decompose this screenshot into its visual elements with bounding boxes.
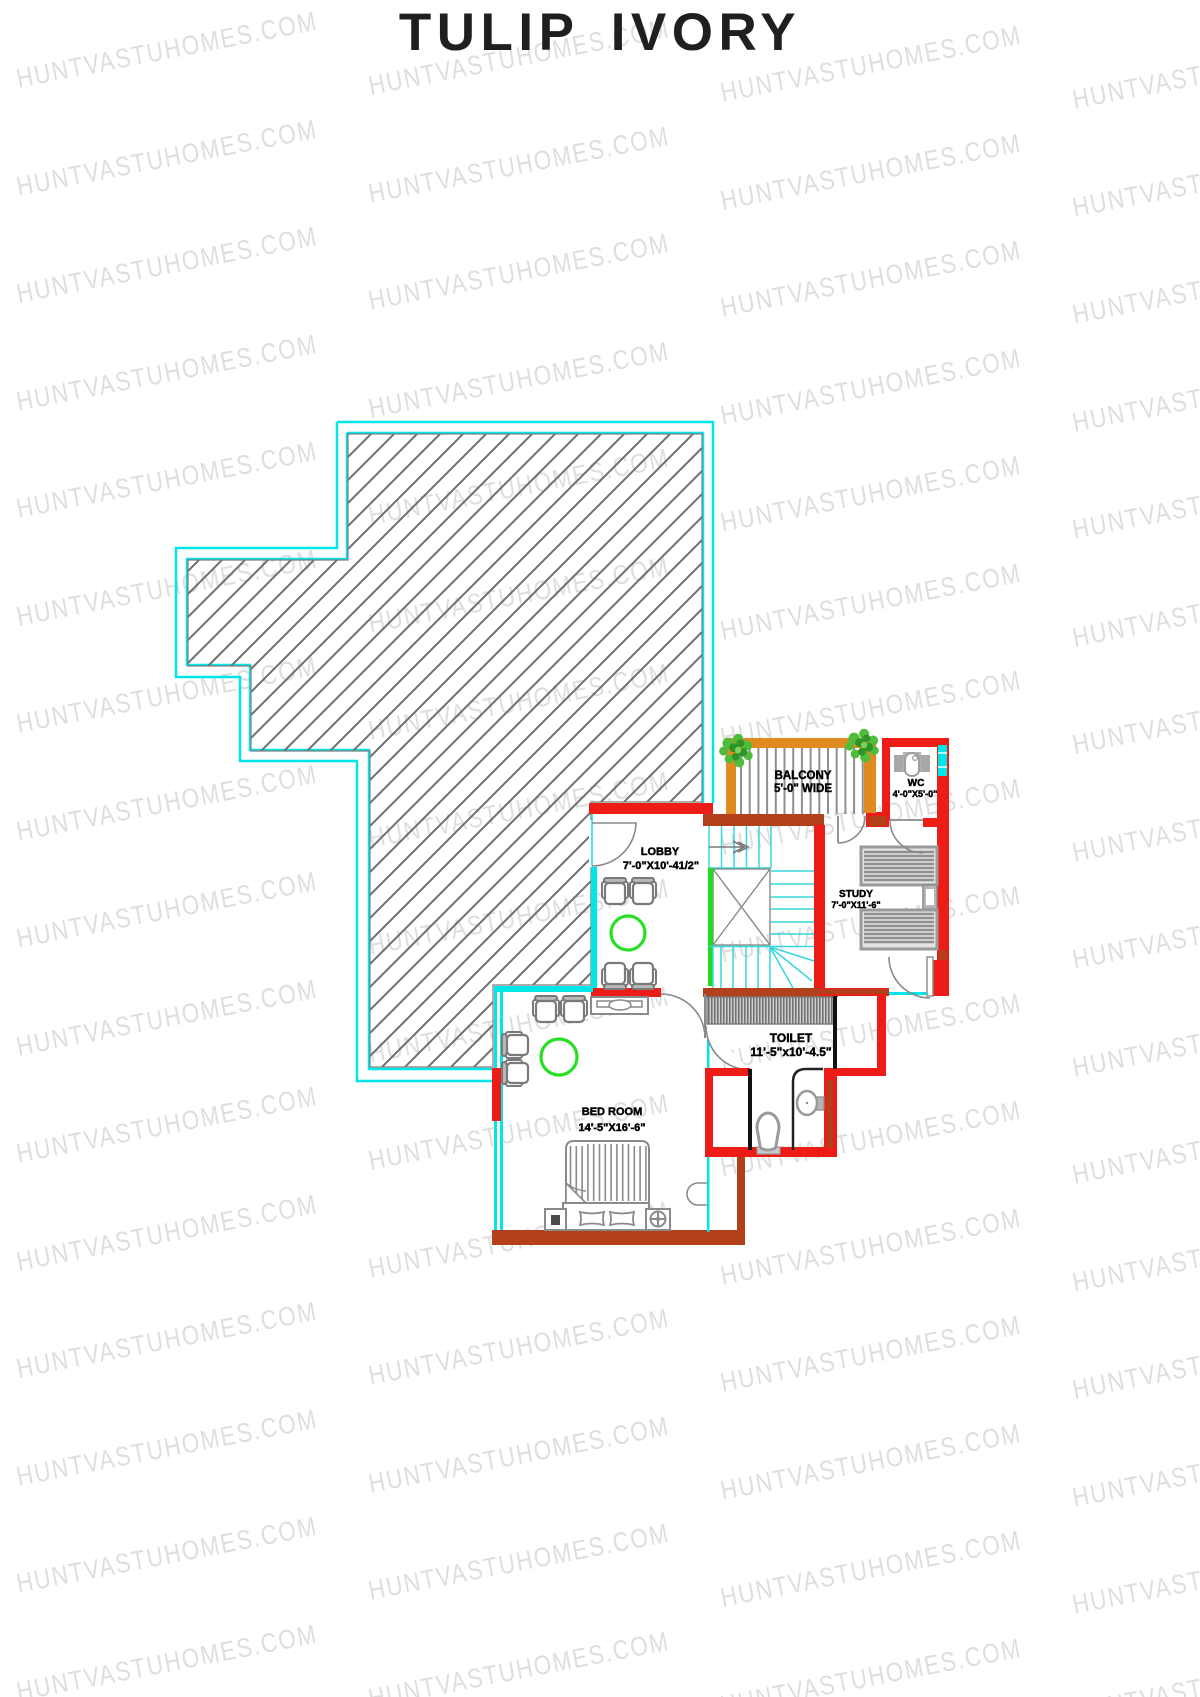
svg-text:14'-5"X16'-6": 14'-5"X16'-6" bbox=[578, 1122, 645, 1134]
svg-text:BED ROOM: BED ROOM bbox=[582, 1106, 643, 1118]
svg-text:4'-0"X5'-0": 4'-0"X5'-0" bbox=[893, 789, 938, 799]
svg-text:7'-0"X11'-6": 7'-0"X11'-6" bbox=[831, 900, 880, 910]
svg-text:TOILET: TOILET bbox=[770, 1031, 813, 1045]
svg-text:WC: WC bbox=[908, 778, 925, 789]
svg-text:11'-5"x10'-4.5": 11'-5"x10'-4.5" bbox=[750, 1045, 831, 1059]
svg-text:5'-0" WIDE: 5'-0" WIDE bbox=[774, 783, 832, 795]
svg-text:BALCONY: BALCONY bbox=[775, 770, 832, 782]
svg-text:7'-0"X10'-41/2": 7'-0"X10'-41/2" bbox=[623, 860, 699, 872]
svg-text:LOBBY: LOBBY bbox=[641, 846, 680, 858]
svg-text:STUDY: STUDY bbox=[839, 889, 873, 900]
